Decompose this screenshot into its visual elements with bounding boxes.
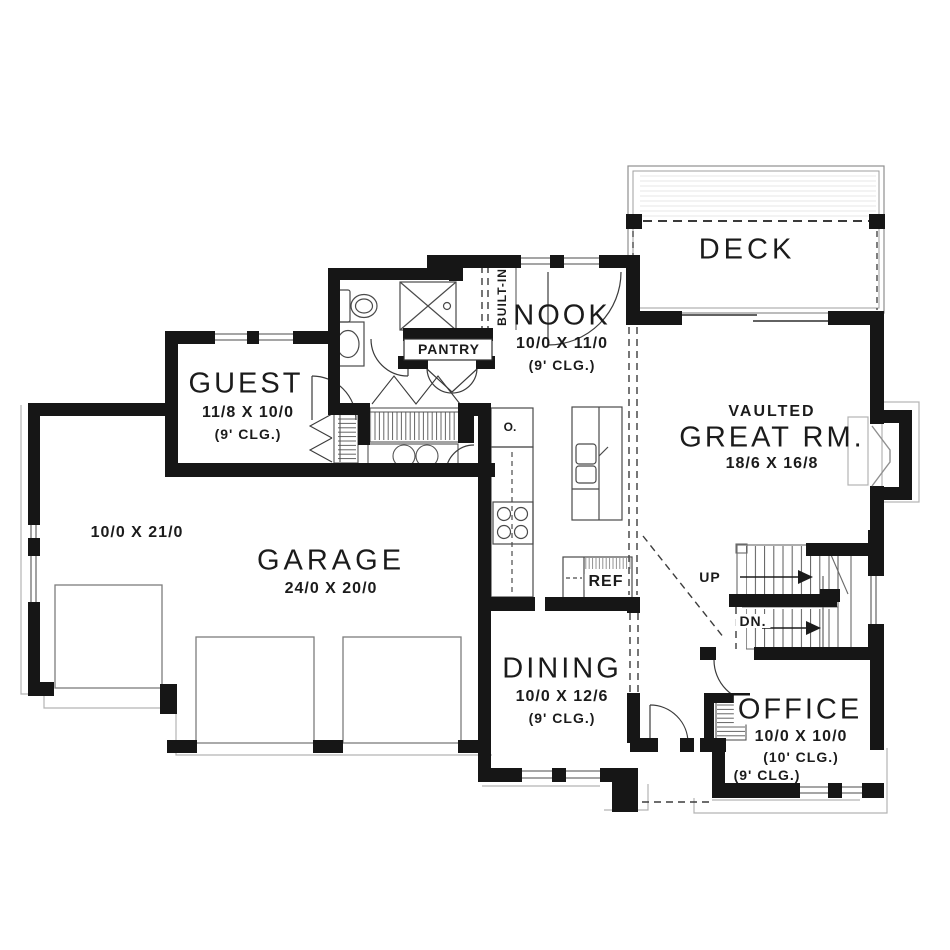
room-prefix-great: VAULTED [728, 404, 815, 420]
room-dim-garage-bay: 10/0 X 21/0 [91, 525, 184, 541]
room-label-garage: GARAGE [257, 547, 405, 576]
sink-icon [337, 331, 359, 358]
room-ceiling-nook: (9' CLG.) [529, 358, 596, 372]
stairs-down-label: DN. [735, 614, 770, 628]
room-dim-guest: 11/8 X 10/0 [202, 405, 294, 421]
room-dim-garage: 24/0 X 20/0 [285, 581, 378, 597]
pantry-label: PANTRY [418, 342, 480, 356]
porch-ceiling-label: (9' CLG.) [730, 768, 805, 782]
room-dim-nook: 10/0 X 11/0 [516, 336, 608, 352]
room-ceiling-guest: (9' CLG.) [215, 427, 282, 441]
room-label-nook: NOOK [513, 302, 610, 331]
room-label-office: OFFICE [734, 696, 866, 725]
room-label-great: GREAT RM. [679, 424, 864, 453]
floor-plan: DECK NOOK 10/0 X 11/0 (9' CLG.) GUEST 11… [0, 0, 950, 950]
room-dim-great: 18/6 X 16/8 [726, 456, 819, 472]
garage-door-bays [55, 585, 461, 743]
refrigerator-label: REF [585, 574, 628, 590]
room-label-dining: DINING [502, 655, 622, 684]
room-label-deck: DECK [699, 236, 796, 265]
room-label-guest: GUEST [189, 370, 304, 399]
room-ceiling-dining: (9' CLG.) [529, 711, 596, 725]
stairs-up-label: UP [699, 570, 720, 584]
plan-drawing [0, 0, 950, 950]
oven-label: O. [504, 421, 517, 433]
room-dim-office: 10/0 X 10/0 [751, 729, 852, 745]
fireplace-icon [872, 426, 890, 486]
room-dim-dining: 10/0 X 12/6 [516, 689, 609, 705]
built-in-label: BUILT-IN [496, 268, 508, 326]
room-ceiling-office: (10' CLG.) [759, 750, 843, 764]
